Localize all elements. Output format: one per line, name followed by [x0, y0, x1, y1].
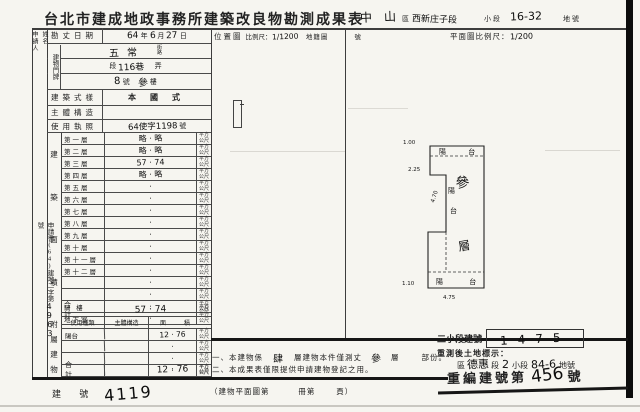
- side-char-3: 面: [50, 234, 58, 245]
- annex-total-value: 12 · 76: [149, 364, 196, 376]
- floor-label: 第八層: [61, 217, 105, 228]
- floor-label: 第五層: [61, 181, 105, 192]
- annex-header-structure: 主體構造: [105, 317, 149, 328]
- location-scale-label: 比例尺：: [246, 31, 272, 41]
- floor-area-value: ·: [105, 228, 196, 240]
- style-label: 建築式樣: [47, 90, 103, 105]
- building-no-label: 建 號: [52, 387, 96, 400]
- building-no-block: 建 號 4119: [52, 384, 153, 403]
- location-label: 位置圖: [214, 31, 243, 42]
- street-unit: 街 路: [157, 46, 162, 57]
- location-scale-handwritten: 1/1200: [271, 32, 298, 42]
- floor-area-value: ·: [105, 204, 196, 216]
- cadastral-no-label: 號: [354, 31, 361, 41]
- balcony-bottom-label: 陽 台: [436, 277, 488, 286]
- lane-value-handwritten: 116巷: [118, 59, 145, 73]
- unit-bottom: 公尺: [197, 139, 211, 145]
- annex-area-unit: 平方 公尺: [196, 329, 211, 340]
- survey-date-value: 64 年 6 月 27 日: [103, 31, 211, 41]
- floor-char-2: 層: [457, 238, 471, 254]
- floor-char-1: 參: [455, 175, 471, 192]
- applicant-cell: 申請人 姓名: [33, 31, 46, 52]
- floor-row: 第二層 略 · 略 平方 公尺: [61, 145, 211, 157]
- annex-structure-value: [105, 329, 149, 340]
- floor-plan-outline: [428, 146, 484, 288]
- scan-smudge-3: [545, 150, 620, 151]
- floor-label: 第二層: [61, 145, 105, 156]
- scan-smudge-2: [348, 108, 408, 109]
- annex-total-unit: 平方 公尺: [196, 363, 211, 377]
- survey-date-row: 勘丈日期 64 年 6 月 27 日: [47, 28, 211, 44]
- floor-label: 第七層: [61, 205, 105, 216]
- street-row: 五常 街 路: [47, 44, 211, 59]
- scan-smudge-bottom: [0, 405, 640, 407]
- style-row: 建築式樣 本 國 式: [47, 90, 211, 106]
- survey-month: 6: [149, 30, 155, 40]
- year-label: 年: [141, 31, 148, 41]
- unit-bottom: 公尺: [197, 283, 211, 289]
- renumber-suffix: 號: [567, 365, 580, 384]
- dim-notch: 4.70: [430, 190, 440, 204]
- renumber-no-handwritten: 456: [530, 364, 565, 388]
- floor-area-unit: 平方 公尺: [196, 181, 211, 192]
- resurvey-subno-box: 1475: [486, 329, 584, 348]
- applicant-label: 申請人: [30, 31, 39, 52]
- annex-use-value: [61, 340, 105, 353]
- note3-mid: 冊第: [298, 387, 315, 396]
- month-label: 月: [157, 31, 164, 41]
- door-value-wrap: 8 號 參 樓: [60, 74, 211, 89]
- floor-total-label: 合 計: [61, 304, 105, 316]
- location-box-header: 位置圖 比例尺： 1/1200 地籍圖 號: [214, 31, 361, 42]
- floor-label: 第九層: [61, 229, 105, 240]
- balcony-side-char-1: 陽: [448, 186, 455, 195]
- annex-area-value: 12 · 76: [149, 329, 196, 340]
- floor-row: 第六層 · 平方 公尺: [61, 193, 211, 205]
- annex-structure-value: [105, 341, 149, 352]
- floor-label: 第十二層: [61, 265, 105, 276]
- floor-area-value: ·: [105, 240, 196, 252]
- floor-area-side-label: 建 築 面 積: [47, 133, 61, 304]
- parcel-number-handwritten: 16-32: [510, 9, 542, 23]
- unit-bottom: 公尺: [197, 347, 211, 353]
- dim-bottom: 4.75: [443, 295, 456, 301]
- note1-floors-handwritten: 肆: [273, 350, 285, 365]
- unit-bottom: 公尺: [197, 199, 211, 205]
- floor-total-row: 合 計 57 · 74 平方 公尺: [61, 304, 211, 317]
- side-char-2: 築: [50, 192, 58, 203]
- resurvey-subno-label: 二小段建號: [437, 332, 482, 345]
- resurvey-renumber-line: 重編建號第 456 號: [447, 365, 581, 387]
- floor-total-unit: 平方 公尺: [196, 304, 211, 316]
- floor-area-unit: 平方 公尺: [196, 277, 211, 288]
- floor-area-unit: 平方 公尺: [196, 193, 211, 204]
- floor-row: 第四層 略 · 略 平方 公尺: [61, 169, 211, 181]
- form-title: 台北市建成地政事務所建築改良物勘測成果表: [44, 9, 364, 29]
- door-floor-handwritten: 參: [137, 74, 148, 89]
- license-no-handwritten: 64使字1198: [128, 119, 178, 133]
- floor-row: 第十二層 · 平方 公尺: [61, 265, 211, 277]
- parcel-label: 地號: [563, 14, 581, 24]
- resurvey-underline: [438, 387, 628, 395]
- floor-area-unit: 平方 公尺: [196, 217, 211, 228]
- building-info-table: 勘丈日期 64 年 6 月 27 日 五常 街 路 段 116巷: [47, 28, 211, 133]
- floor-label: 第四層: [61, 169, 105, 180]
- side-char-4: 積: [50, 277, 58, 288]
- note1-unit: 層: [391, 352, 400, 363]
- floor-area-value: 略 · 略: [105, 143, 196, 157]
- annex-side-1: 附: [50, 319, 58, 330]
- divider-location-plan: [345, 28, 346, 340]
- floor-area-value: ·: [105, 252, 196, 264]
- street-value-wrap: 五常 街 路: [60, 44, 211, 59]
- lane-value-wrap: 段 116巷 弄: [60, 60, 211, 73]
- floor-label: 第三層: [61, 157, 105, 168]
- unit-bottom: 公尺: [197, 247, 211, 253]
- annex-row: · 平方 公尺: [61, 341, 211, 353]
- annex-row: 陽台 12 · 76 平方 公尺: [61, 329, 211, 341]
- floor-area-unit: 平方 公尺: [196, 253, 211, 264]
- resurvey-subno-block: 二小段建號 1475: [437, 329, 584, 348]
- floor-area-value: ·: [105, 192, 196, 204]
- plan-scale-handwritten: 1/200: [509, 32, 532, 42]
- street-name-handwritten: 五常: [109, 43, 146, 59]
- floor-area-unit: 平方 公尺: [196, 229, 211, 240]
- annex-use-value: 陽台: [61, 328, 105, 341]
- annex-header-use: 使用種類: [61, 317, 105, 328]
- application-doc-suffix: 號: [36, 222, 43, 229]
- unit-bottom: 公尺: [197, 163, 211, 169]
- floor-area-value: ·: [105, 180, 196, 192]
- balcony-side-char-2: 台: [450, 206, 457, 215]
- floor-label: 第一層: [61, 133, 105, 144]
- district-handwritten: 中山: [360, 7, 409, 26]
- floor-area-value: ·: [105, 216, 196, 228]
- survey-year: 64: [127, 30, 139, 40]
- address-group-cell: 建物門牌: [48, 45, 61, 89]
- subsection-label: 小段: [484, 14, 502, 24]
- structure-label: 主體構造: [47, 106, 103, 119]
- resurvey-subno-handwritten: 1475: [499, 330, 570, 348]
- annex-total-row: 合 計 12 · 76 平方 公尺: [61, 363, 211, 377]
- floor-area-unit: 平方 公尺: [196, 133, 211, 144]
- floor-area-unit: 平方 公尺: [196, 145, 211, 156]
- floor-row: 第八層 · 平方 公尺: [61, 217, 211, 229]
- floor-area-value: 57 · 74: [105, 156, 196, 168]
- floor-total-value: 57 · 74: [105, 303, 196, 316]
- floor-row: · 平方 公尺: [61, 277, 211, 289]
- lane-seg-label: 段: [109, 61, 116, 71]
- note1-measured-handwritten: 參: [371, 350, 383, 365]
- floor-row: 第十一層 · 平方 公尺: [61, 253, 211, 265]
- door-no-label: 號: [123, 77, 130, 87]
- note3-prefix: （建物平面圖第: [210, 387, 270, 396]
- floor-area-table: 第一層 略 · 略 平方 公尺 第二層 略 · 略 平方 公尺 第三層 57 ·…: [61, 133, 211, 304]
- day-label: 日: [180, 31, 187, 41]
- plan-box-header: 平面圖比例尺： 1/200: [450, 31, 533, 42]
- license-label: 使用執照: [47, 120, 103, 132]
- floor-row: 第十層 · 平方 公尺: [61, 241, 211, 253]
- dim-left-upper: 2.25: [408, 167, 421, 173]
- note3-suffix: 頁）: [336, 387, 353, 396]
- floor-area-unit: 平方 公尺: [196, 169, 211, 180]
- floor-plan-drawing: 1.00 陽 台 2.25 陽 台 4.70 參 層 1.10 陽 台 4.75: [393, 133, 518, 303]
- floor-label: 第六層: [61, 193, 105, 204]
- lane-unit-label: 弄: [155, 61, 162, 71]
- cadastral-label: 地籍圖: [306, 31, 329, 41]
- unit-bottom: 公尺: [197, 151, 211, 157]
- floor-area-value: ·: [105, 288, 196, 300]
- scan-smudge-1: [230, 151, 345, 152]
- address-group-label: 建物門牌: [49, 54, 59, 80]
- plan-scale-label: 平面圖比例尺：: [450, 31, 510, 42]
- dim-top-left: 1.00: [403, 140, 416, 146]
- unit-bottom: 公尺: [197, 335, 211, 341]
- floor-row: 第九層 · 平方 公尺: [61, 229, 211, 241]
- annex-header-row: 使用種類 主體構造 面積: [61, 317, 211, 329]
- unit-bottom: 公尺: [197, 295, 211, 301]
- annex-side-2: 屬: [50, 334, 58, 345]
- divider-table-location: [211, 28, 212, 378]
- dim-bottom-left: 1.10: [402, 281, 415, 287]
- annex-total-structure: [105, 363, 149, 377]
- floor-area-value: ·: [105, 276, 196, 288]
- annex-area-value: ·: [149, 341, 196, 352]
- unit-bottom: 公尺: [197, 187, 211, 193]
- annex-side-label: 附 屬 建 物: [47, 317, 61, 377]
- annex-side-3: 建: [50, 349, 58, 360]
- note1-prefix: 一、本建物係: [212, 352, 263, 363]
- unit-bottom: 公尺: [197, 259, 211, 265]
- unit-bottom: 公尺: [197, 310, 211, 316]
- floor-area-unit: 平方 公尺: [196, 265, 211, 276]
- floor-area-unit: 平方 公尺: [196, 205, 211, 216]
- annex-rows: 陽台 12 · 76 平方 公尺 · 平方 公尺 · 平方 公尺: [61, 329, 211, 363]
- floor-area-unit: 平方 公尺: [196, 157, 211, 168]
- note1-mid: 層建物本件僅測丈: [294, 352, 362, 363]
- survey-date-label: 勘丈日期: [47, 28, 103, 43]
- note-2: 二、本成果表僅限提供申請建物登記之用。: [212, 364, 374, 375]
- scanned-survey-form: 台北市建成地政事務所建築改良物勘測成果表 中山 區 西新庄子段 小段 16-32…: [0, 0, 640, 412]
- annex-total-label: 合 計: [61, 363, 105, 377]
- floor-area-unit: 平方 公尺: [196, 289, 211, 300]
- application-doc-number: 申請書(64)建地二字第4963號: [34, 222, 46, 344]
- side-char-1: 建: [50, 149, 58, 160]
- floor-label: [61, 277, 105, 288]
- building-no-handwritten: 4119: [104, 382, 154, 405]
- door-no-handwritten: 8: [114, 76, 121, 87]
- floor-area-value: ·: [105, 264, 196, 276]
- door-floor-label: 樓: [150, 77, 157, 87]
- unit-bottom: 公尺: [197, 211, 211, 217]
- floor-label: 第十一層: [61, 253, 105, 264]
- license-suffix: 號: [179, 121, 186, 131]
- renumber-prefix: 重編建號第: [447, 366, 527, 386]
- license-value-wrap: 64使字1198 號: [103, 120, 211, 132]
- style-value: 本 國 式: [103, 92, 211, 103]
- balcony-top-label: 陽 台: [439, 147, 485, 156]
- unit-bottom: 公尺: [197, 223, 211, 229]
- floor-area-value: 略 · 略: [105, 167, 196, 181]
- unit-bottom: 公尺: [197, 271, 211, 277]
- floor-area-unit: 平方 公尺: [196, 241, 211, 252]
- floor-label: [61, 289, 105, 300]
- note-3: （建物平面圖第 冊第 頁）: [210, 386, 353, 397]
- border-left: [32, 28, 33, 378]
- floor-row: 第七層 · 平方 公尺: [61, 205, 211, 217]
- annex-area-unit: 平方 公尺: [196, 341, 211, 352]
- section-handwritten: 西新庄子段: [412, 11, 457, 26]
- lane-row: 段 116巷 弄: [47, 59, 211, 74]
- annex-side-4: 物: [50, 364, 58, 375]
- survey-day: 27: [166, 30, 178, 40]
- unit-bottom: 公尺: [197, 370, 211, 376]
- structure-row: 主體構造: [47, 106, 211, 120]
- floor-row: 第五層 · 平方 公尺: [61, 181, 211, 193]
- district-label: 區: [402, 14, 409, 24]
- unit-bottom: 公尺: [197, 235, 211, 241]
- street-unit-bottom: 路: [157, 51, 162, 57]
- door-row: 8 號 參 樓: [47, 74, 211, 90]
- note-1: 一、本建物係 肆 層建物本件僅測丈 參 層 部份。: [212, 350, 447, 365]
- floor-label: 第十層: [61, 241, 105, 252]
- unit-bottom: 公尺: [197, 175, 211, 181]
- annex-header-area: 面積: [149, 317, 211, 328]
- location-sketch-tick: [240, 104, 244, 105]
